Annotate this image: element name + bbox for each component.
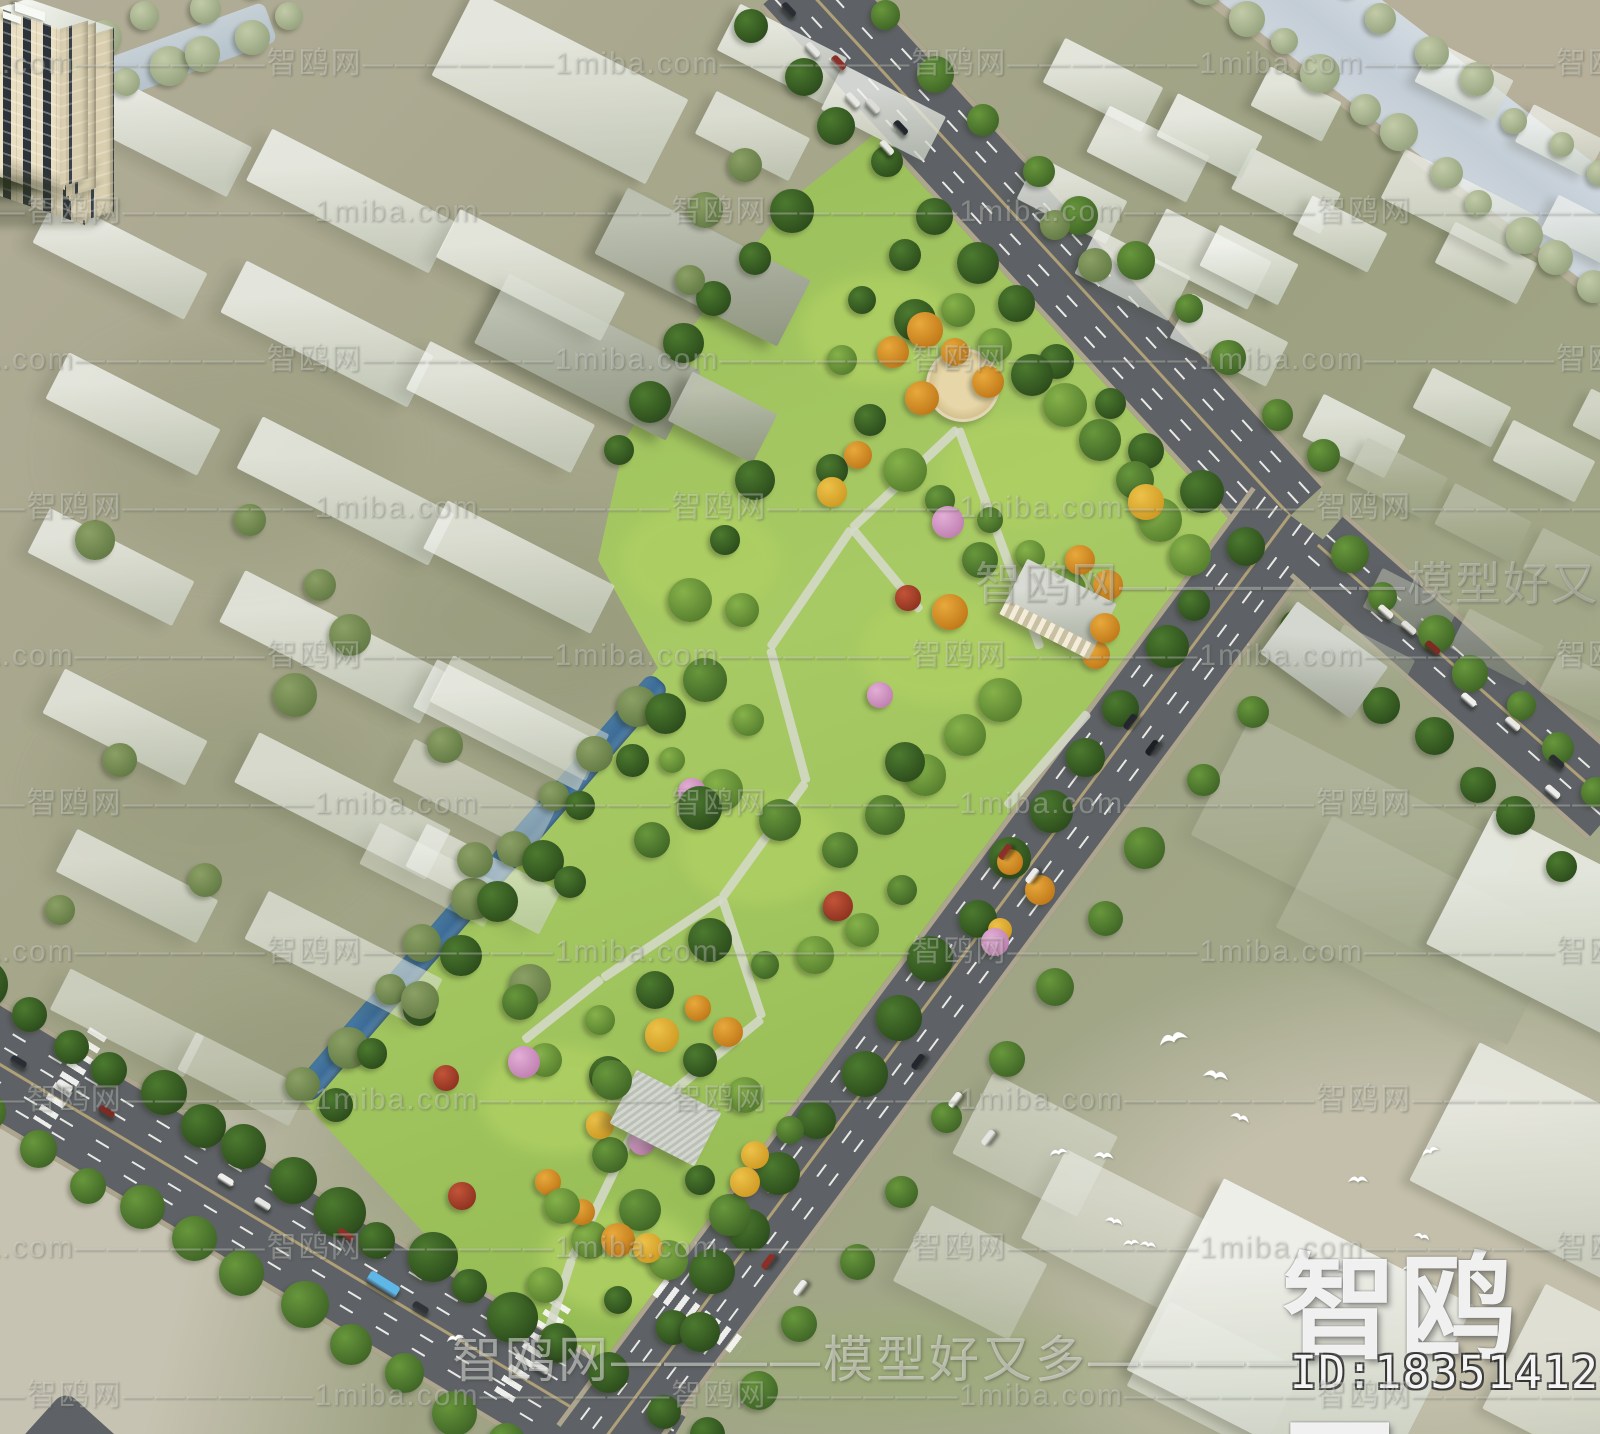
tree <box>685 1165 715 1195</box>
tree <box>273 673 316 716</box>
tree <box>502 984 538 1020</box>
tree <box>981 928 1009 956</box>
tree <box>45 895 74 924</box>
tree <box>1146 625 1189 668</box>
tree <box>916 198 953 235</box>
tree <box>735 460 775 500</box>
tree <box>907 312 942 347</box>
tree <box>1501 108 1527 134</box>
tree <box>817 107 855 145</box>
tree <box>885 742 925 782</box>
tree <box>1271 28 1298 55</box>
tree <box>592 1137 628 1173</box>
bird-icon <box>1122 1233 1141 1244</box>
tree <box>1229 1 1265 37</box>
tree <box>687 192 722 227</box>
tree <box>452 1269 486 1303</box>
tree <box>592 1060 632 1100</box>
tree <box>887 875 917 905</box>
tree <box>1431 157 1463 189</box>
tree <box>1415 717 1453 755</box>
tree <box>403 924 441 962</box>
tree <box>770 189 814 233</box>
tree <box>1088 901 1123 936</box>
tree <box>867 682 893 708</box>
tree <box>235 20 270 55</box>
tree <box>1095 388 1126 419</box>
tree <box>1507 691 1536 720</box>
tower-side-facade <box>60 20 88 187</box>
tree <box>112 68 140 96</box>
tree <box>54 1030 89 1065</box>
tree <box>275 2 303 30</box>
context-building <box>1413 367 1512 447</box>
tree <box>604 1286 632 1314</box>
tree <box>905 381 939 415</box>
tree <box>998 285 1034 321</box>
tree <box>854 404 886 436</box>
tree <box>629 381 671 423</box>
bird-icon <box>1093 1147 1116 1160</box>
tree <box>931 1102 962 1133</box>
tree <box>709 1194 750 1235</box>
context-building <box>432 0 689 184</box>
tree <box>781 1306 817 1342</box>
context-building <box>246 129 455 274</box>
tree <box>645 693 686 734</box>
tree <box>842 1051 888 1097</box>
tree <box>739 242 771 274</box>
tree <box>785 58 823 96</box>
tree <box>1030 790 1073 833</box>
tree <box>989 1041 1025 1077</box>
tree <box>1415 36 1449 70</box>
tree <box>150 46 190 86</box>
tree <box>1577 270 1600 303</box>
tree <box>845 913 878 946</box>
tree <box>840 1244 875 1279</box>
aerial-render: 智鸥网——————模型好又多——— 智鸥网————模型好又多———— 智鸥网 I… <box>0 0 1600 1434</box>
tree <box>680 1312 720 1352</box>
bird-icon <box>444 1328 465 1341</box>
context-building <box>1293 195 1388 272</box>
tree <box>130 1 159 30</box>
tree <box>1128 484 1163 519</box>
tree <box>689 1249 734 1294</box>
tree <box>1180 470 1223 513</box>
tree <box>907 936 953 982</box>
tree <box>234 504 265 535</box>
tree <box>185 36 220 71</box>
tree <box>357 1038 387 1068</box>
tree <box>432 1391 477 1434</box>
tree <box>103 743 137 777</box>
bird-icon <box>1047 1142 1068 1155</box>
tree <box>285 1067 320 1102</box>
tree <box>1460 62 1494 96</box>
tree <box>1262 399 1294 431</box>
bird-icon <box>1347 1172 1369 1183</box>
ghost-building <box>1522 528 1600 609</box>
tree <box>730 1167 760 1197</box>
tree <box>440 935 482 977</box>
tree <box>796 936 833 973</box>
ghost-building <box>1434 483 1532 563</box>
context-building <box>1572 388 1600 457</box>
tree <box>75 520 114 559</box>
tree <box>1496 796 1535 835</box>
tree <box>883 448 927 492</box>
tree <box>1090 613 1120 643</box>
tree <box>725 593 759 627</box>
tree <box>120 1185 164 1229</box>
tree <box>751 951 779 979</box>
tree <box>739 1371 778 1410</box>
tree <box>1365 3 1396 34</box>
tree <box>728 148 763 183</box>
tree <box>710 525 739 554</box>
tree <box>181 1104 225 1148</box>
tree <box>1307 439 1340 472</box>
tree <box>1211 340 1245 374</box>
tree <box>448 1182 475 1209</box>
tree <box>668 578 712 622</box>
tree <box>1460 767 1496 803</box>
tree <box>1124 827 1166 869</box>
tree <box>685 995 710 1020</box>
tree <box>1550 132 1574 156</box>
tree <box>457 842 493 878</box>
tree <box>385 1353 424 1392</box>
tree <box>659 747 685 773</box>
tree <box>944 714 985 755</box>
tree <box>647 1395 681 1429</box>
tree <box>895 585 920 610</box>
tree <box>270 1157 317 1204</box>
tower-front-facade <box>0 8 65 190</box>
tree <box>601 1223 635 1257</box>
tree <box>663 323 704 364</box>
tree <box>865 795 905 835</box>
tree <box>1117 241 1156 280</box>
tree <box>408 1232 457 1281</box>
bird-icon <box>1336 1261 1353 1272</box>
tree <box>358 1222 395 1259</box>
tree <box>12 997 47 1032</box>
tree <box>565 791 595 821</box>
tree <box>219 1250 264 1295</box>
tree <box>844 441 872 469</box>
tree <box>70 1168 106 1204</box>
tree <box>304 569 337 602</box>
tree <box>585 1005 615 1035</box>
tree <box>554 866 586 898</box>
tree <box>433 1065 459 1091</box>
tree <box>877 336 909 368</box>
tree <box>1227 527 1266 566</box>
tree <box>871 0 900 29</box>
bird-icon <box>1402 1259 1418 1267</box>
tree <box>967 104 999 136</box>
tree <box>645 1018 678 1051</box>
tree <box>1011 354 1052 395</box>
tree <box>885 1176 917 1208</box>
tree <box>1178 588 1210 620</box>
bird-icon <box>1139 1235 1158 1247</box>
tree <box>817 477 847 507</box>
tree <box>1066 738 1105 777</box>
tree <box>1175 294 1203 322</box>
tree <box>172 1216 217 1261</box>
tree <box>683 658 726 701</box>
tree <box>1538 240 1573 275</box>
tree <box>1465 190 1492 217</box>
tree <box>588 1352 629 1393</box>
tree <box>281 1281 329 1329</box>
tree <box>401 981 439 1019</box>
tree <box>544 1188 580 1224</box>
tree <box>1023 156 1055 188</box>
tree <box>477 881 518 922</box>
tree <box>734 9 768 43</box>
tree <box>678 786 722 830</box>
tree <box>759 799 801 841</box>
tree <box>932 506 963 537</box>
tree <box>616 744 649 777</box>
tree <box>889 239 921 271</box>
tree <box>634 822 670 858</box>
tree <box>1065 545 1095 575</box>
tree <box>822 832 858 868</box>
tree <box>823 891 853 921</box>
tree <box>427 727 462 762</box>
tree <box>978 678 1022 722</box>
tree <box>91 1052 127 1088</box>
tree <box>962 542 998 578</box>
tree <box>487 1292 538 1343</box>
tree <box>848 286 876 314</box>
tree <box>1300 54 1340 94</box>
tree <box>1187 764 1219 796</box>
tree <box>1079 419 1120 460</box>
tree <box>1078 248 1112 282</box>
tree <box>576 736 613 773</box>
tree <box>542 1326 575 1359</box>
context-building <box>1493 420 1596 503</box>
tree <box>586 1111 613 1138</box>
tree <box>727 1077 763 1113</box>
tree <box>1452 655 1488 691</box>
tree <box>1043 383 1087 427</box>
tree <box>330 1324 372 1366</box>
scene-layer <box>0 0 1600 1434</box>
